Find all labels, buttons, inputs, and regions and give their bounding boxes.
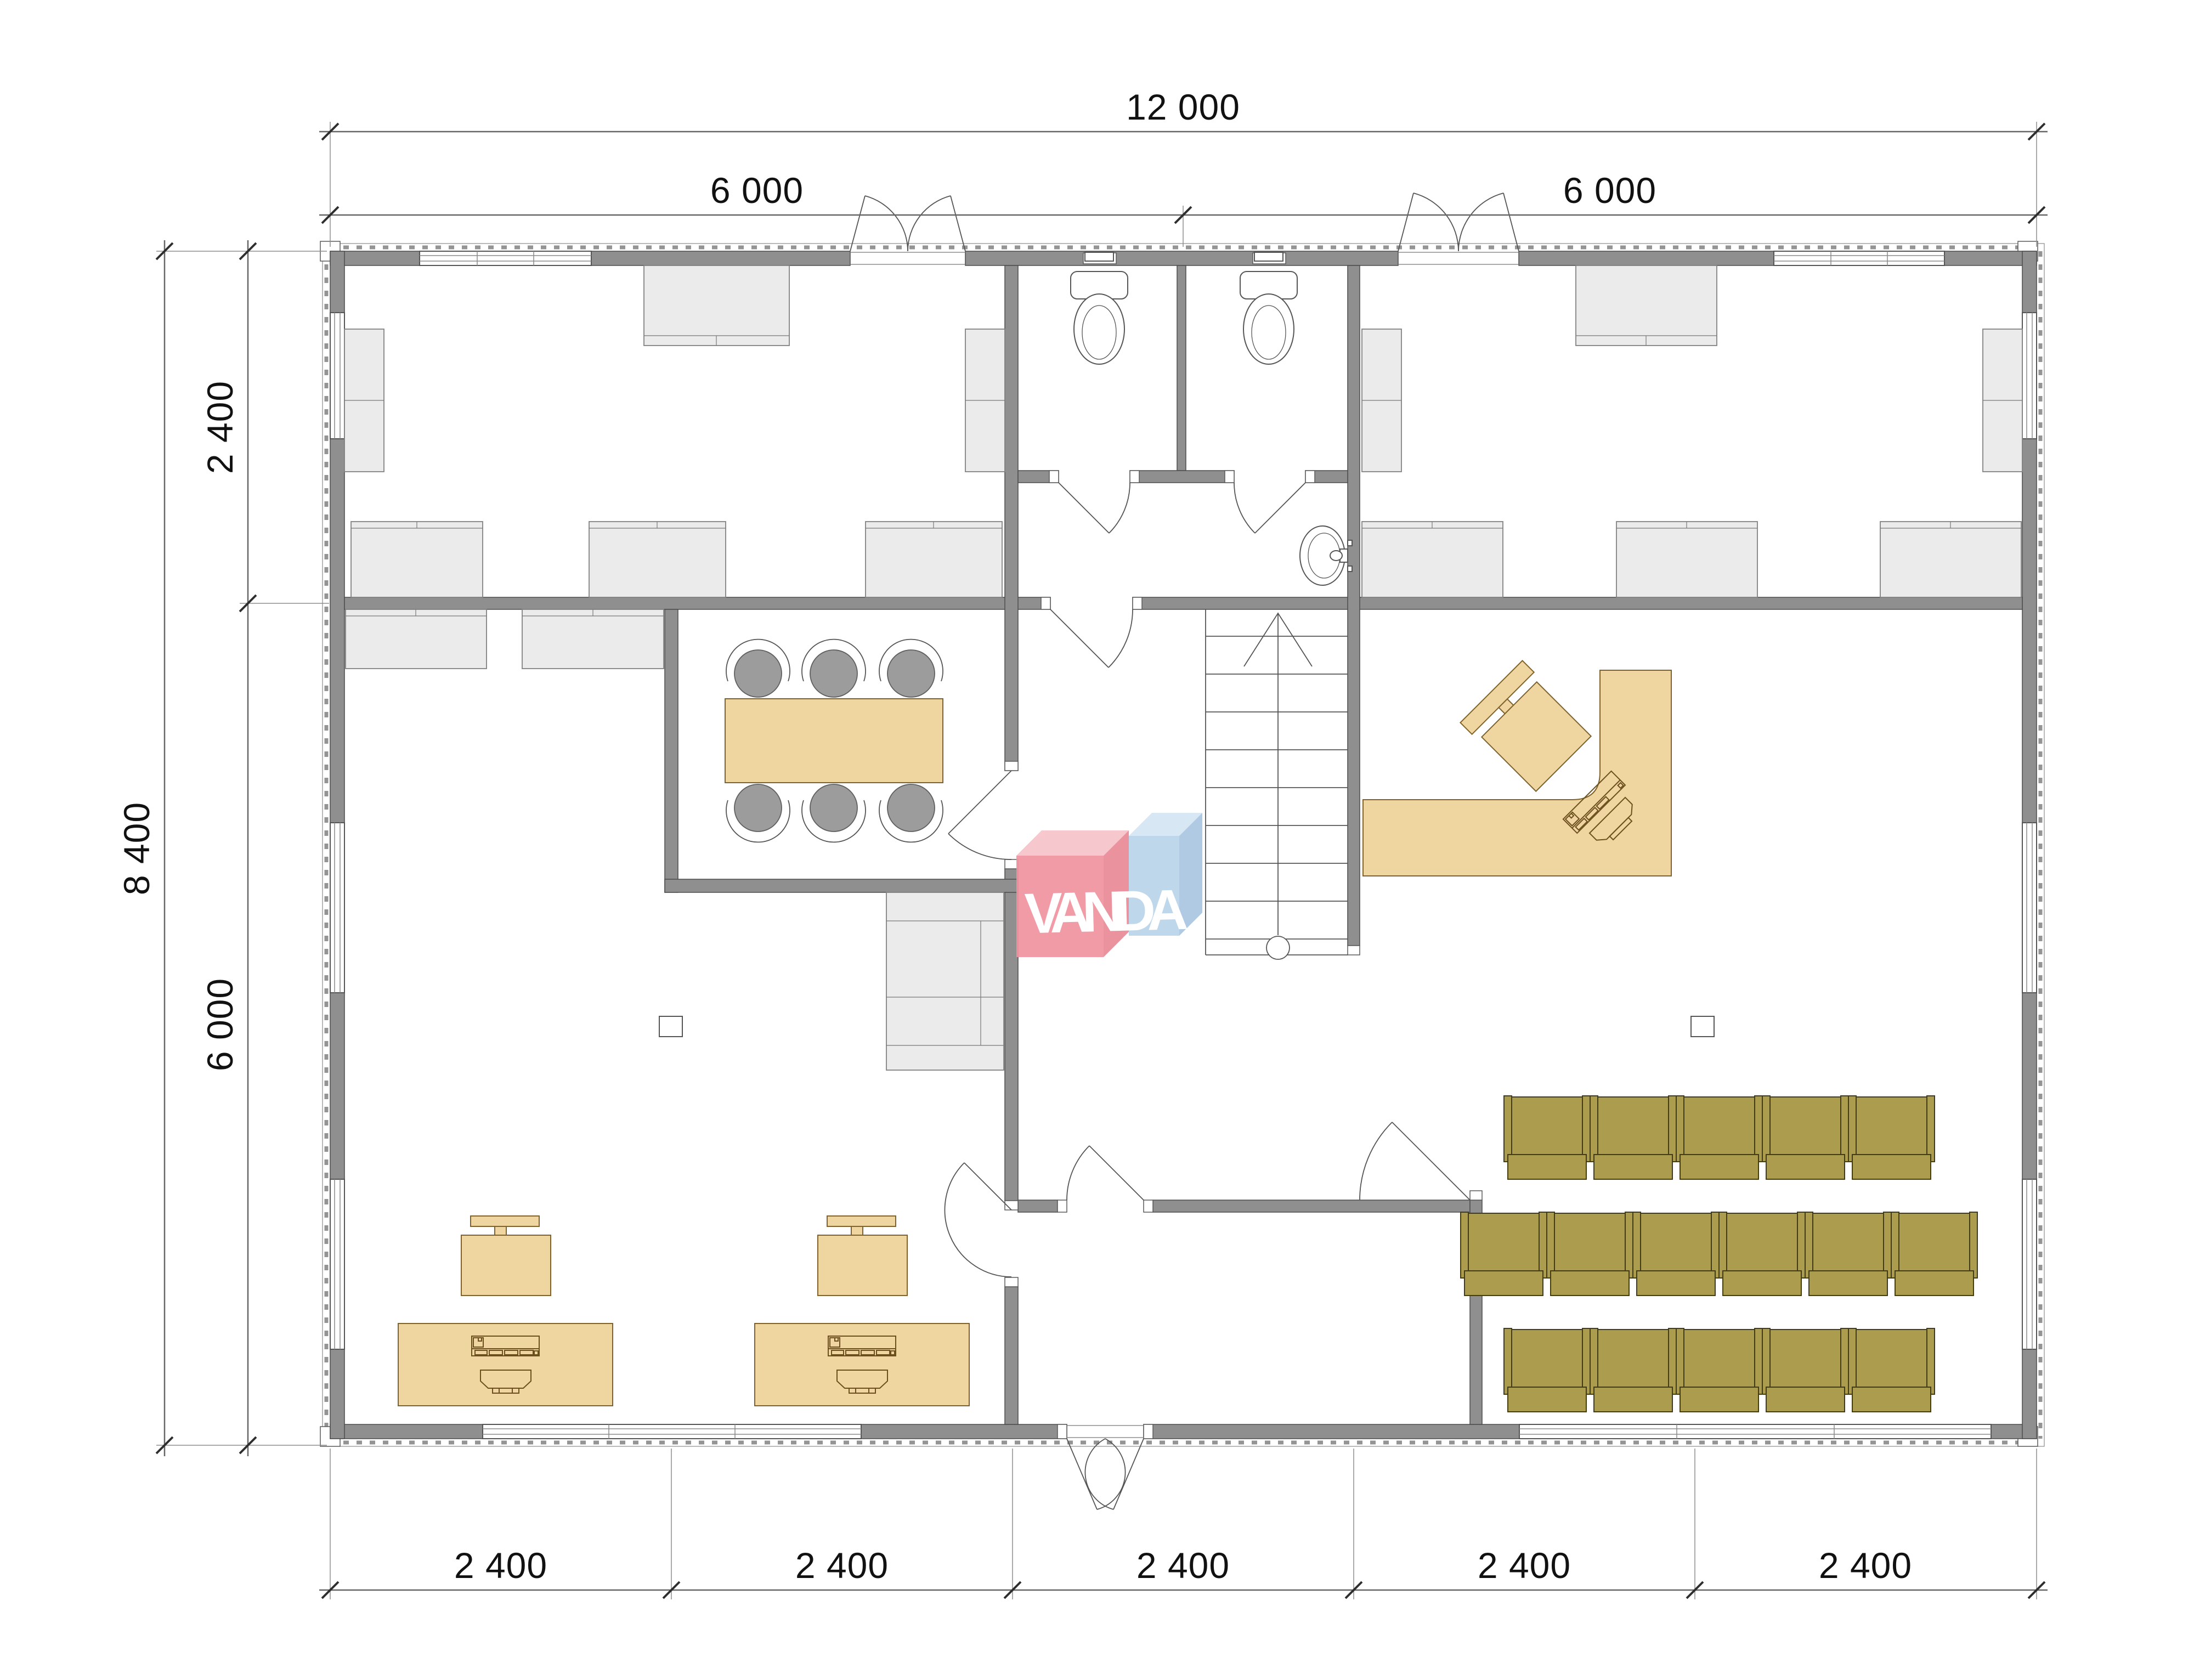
office-top-left — [344, 265, 1005, 597]
wall-bottom — [1144, 1424, 1519, 1439]
window-icon — [1519, 1424, 1991, 1439]
wall-left — [330, 1349, 344, 1439]
dim-top-total: 12 000 — [1126, 87, 1240, 127]
window-icon — [2022, 313, 2037, 439]
audience-chair-icon — [1676, 1096, 1762, 1179]
office-chair-icon — [1460, 660, 1594, 795]
cabinet-icon — [351, 522, 483, 597]
entry-door-icon — [1067, 1426, 1144, 1509]
audience-chair-icon — [1590, 1328, 1676, 1412]
meeting-chair-icon — [879, 784, 943, 842]
door-swing-icon — [1059, 483, 1305, 533]
cabinet-icon — [965, 329, 1005, 472]
wall-top — [1519, 251, 1774, 265]
window-icon — [1774, 251, 1944, 265]
audience-chair-icon — [1719, 1212, 1805, 1296]
desk-icon — [755, 1216, 969, 1406]
meeting-chair-icon — [802, 640, 866, 697]
wall-top — [591, 251, 850, 265]
wall-wc-front — [1130, 471, 1234, 483]
cabinet-icon — [589, 522, 726, 597]
wall-left — [330, 993, 344, 1179]
cabinet-icon — [1983, 329, 2022, 472]
office-top-right — [1362, 265, 2022, 597]
door-swing-icon — [850, 196, 965, 264]
sideboard-icon — [886, 892, 1004, 1070]
wc-fixtures — [1071, 252, 1352, 585]
wall-vestibule-top — [1018, 1200, 1058, 1212]
wall-right — [2022, 251, 2037, 313]
audience-chair-icon — [1676, 1328, 1762, 1412]
wall-w2 — [1348, 265, 1360, 946]
cabinet-icon — [1362, 329, 1401, 472]
cabinet-icon — [1576, 265, 1717, 346]
dim-top-right: 6 000 — [1563, 170, 1656, 211]
wall-w1 — [1005, 265, 1018, 771]
wall-interior-band — [344, 597, 1050, 609]
audience-chair-icon — [1590, 1096, 1676, 1179]
cabinet-icon — [1362, 522, 1503, 597]
sink-icon — [1300, 526, 1352, 585]
meeting-chair-icon — [726, 784, 790, 842]
cabinet-icon — [1880, 522, 2021, 597]
audience-chair-icon — [1504, 1096, 1590, 1179]
watermark-logo: VANDA — [1016, 813, 1202, 957]
watermark-text: VANDA — [1024, 878, 1190, 946]
wall-wc-partition — [1177, 265, 1186, 471]
wall-left — [330, 439, 344, 823]
wall-right — [2022, 1349, 2037, 1439]
wall-interior-band — [1133, 597, 2022, 609]
window-icon — [330, 313, 344, 439]
cabinet-icon — [644, 265, 789, 346]
meeting-chair-icon — [726, 640, 790, 697]
audience-chair-icon — [1848, 1096, 1935, 1179]
door-swing-icon — [1067, 1146, 1144, 1200]
window-icon — [483, 1424, 861, 1439]
wall-top — [965, 251, 1398, 265]
column-icon — [659, 1016, 682, 1037]
window-icon — [2022, 823, 2037, 993]
dim-side-bottom: 6 000 — [200, 978, 240, 1071]
cabinet-icon — [344, 329, 384, 472]
door-swing-icon — [1050, 609, 1133, 668]
door-swing-icon — [945, 1163, 1011, 1277]
wall-bottom — [861, 1424, 1067, 1439]
column-icon — [1691, 1016, 1714, 1037]
dim-bottom-3: 2 400 — [1136, 1545, 1230, 1586]
wall-vestibule-top — [1153, 1200, 1470, 1212]
window-icon — [420, 251, 591, 265]
cabinet-icon — [522, 609, 664, 669]
cabinet-icon — [1616, 522, 1757, 597]
meeting-room — [725, 640, 943, 842]
audience-chair-icon — [1633, 1212, 1719, 1296]
meeting-table-icon — [725, 699, 943, 783]
audience-chair-icon — [1762, 1096, 1848, 1179]
audience-chair-icon — [1848, 1328, 1935, 1412]
audience-chair-icon — [1461, 1212, 1547, 1296]
door-swing-icon — [1360, 1122, 1470, 1200]
desk-icon — [398, 1216, 613, 1406]
dim-bottom-5: 2 400 — [1819, 1545, 1912, 1586]
audience-chair-icon — [1762, 1328, 1848, 1412]
door-swing-icon — [1398, 193, 1519, 264]
toilet-icon — [1071, 252, 1128, 364]
wall-bottom — [330, 1424, 483, 1439]
dim-bottom-2: 2 400 — [795, 1545, 889, 1586]
meeting-chair-icon — [879, 640, 943, 697]
wall-meeting-left — [665, 609, 678, 892]
meeting-chair-icon — [802, 784, 866, 842]
window-icon — [330, 823, 344, 993]
wall-w1 — [1005, 1287, 1018, 1424]
dim-bottom-1: 2 400 — [454, 1545, 547, 1586]
dim-side-top: 2 400 — [200, 381, 240, 474]
wall-meeting-bottom — [665, 879, 1018, 892]
cabinet-icon — [346, 609, 487, 669]
window-icon — [330, 1179, 344, 1349]
wall-right — [2022, 439, 2037, 823]
wall-w1 — [1005, 869, 1018, 1201]
audience-chair-icon — [1805, 1212, 1891, 1296]
toilet-icon — [1240, 252, 1297, 364]
stairs-icon — [1206, 609, 1348, 959]
wall-left — [330, 251, 344, 313]
audience-chair-icon — [1504, 1328, 1590, 1412]
floor-plan-page: 12 000 6 000 6 000 8 400 2 400 6 000 2 4… — [0, 0, 2194, 1680]
door-swing-icon — [948, 771, 1011, 859]
dim-top-left: 6 000 — [710, 170, 804, 211]
audience-chair-icon — [1891, 1212, 1977, 1296]
audience-chair-icon — [1547, 1212, 1633, 1296]
dim-bottom-4: 2 400 — [1478, 1545, 1571, 1586]
window-icon — [2022, 1179, 2037, 1349]
wall-right — [2022, 993, 2037, 1179]
cabinet-icon — [866, 522, 1002, 597]
multi-purpose-room — [1363, 660, 1977, 1412]
floor-plan-drawing: 12 000 6 000 6 000 8 400 2 400 6 000 2 4… — [0, 0, 2194, 1680]
dim-side-total: 8 400 — [116, 802, 157, 895]
